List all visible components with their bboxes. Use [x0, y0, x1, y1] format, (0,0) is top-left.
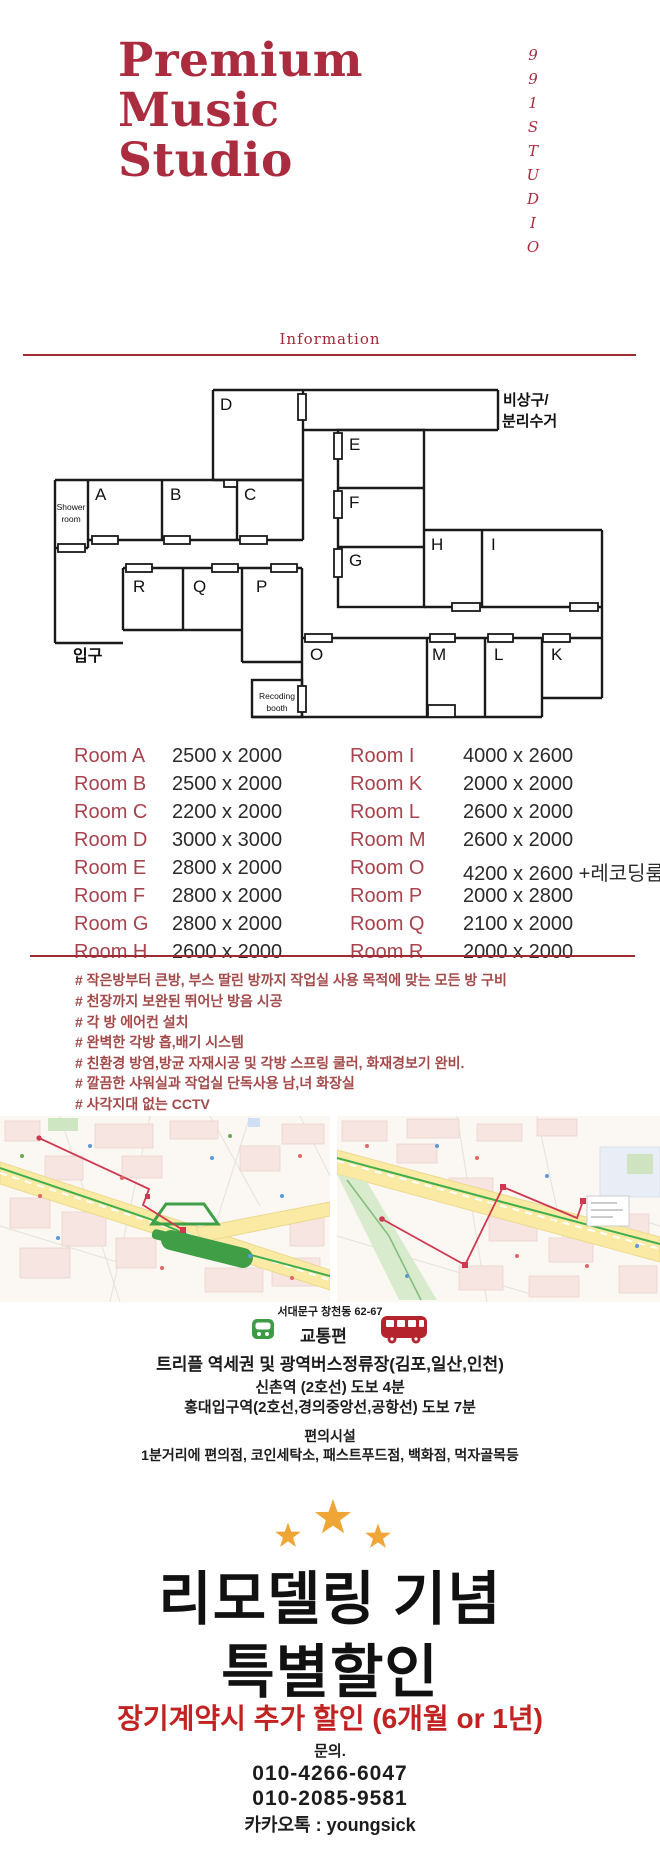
page-title: Premium Music Studio [118, 36, 363, 186]
room-size: 2800 x 2000 [172, 857, 282, 879]
feature-item: # 천장까지 보완된 뛰어난 방음 시공 [75, 991, 283, 1011]
emergency-exit-label-1: 비상구/ [503, 392, 549, 409]
room-label-r: R [133, 577, 145, 596]
amenities-heading: 편의시설 [0, 1426, 660, 1446]
recording-booth-label-1: Recoding [259, 691, 295, 701]
room-size: 2000 x 2000 [463, 773, 573, 795]
room-label-c: C [244, 485, 256, 504]
shower-room-label-2: room [61, 514, 80, 524]
room-size: 3000 x 3000 [172, 829, 282, 851]
room-label-p: P [256, 577, 267, 596]
room-name: Room D [74, 829, 147, 851]
phone-number-2: 010-2085-9581 [0, 1787, 660, 1811]
subway-icon [251, 1318, 275, 1341]
room-size: 2600 x 2000 [463, 829, 573, 851]
room-name: Room H [74, 941, 147, 963]
map-left [0, 1116, 330, 1302]
room-name: Room I [350, 745, 414, 767]
bus-icon [380, 1314, 428, 1345]
title-line-2: Music [118, 86, 363, 136]
vertical-brand-text: 991STUDIO [524, 46, 542, 246]
map-right [337, 1116, 660, 1302]
room-label-b: B [170, 485, 181, 504]
room-size: 2500 x 2000 [172, 773, 282, 795]
room-name: Room B [74, 773, 146, 795]
room-size: 2200 x 2000 [172, 801, 282, 823]
room-size: 2100 x 2000 [463, 913, 573, 935]
floor-plan: D A B C E F G H I R Q P O M L K Shower r… [0, 380, 660, 725]
divider-middle [30, 955, 635, 957]
room-size: 4000 x 2600 [463, 745, 573, 767]
feature-item: # 사각지대 없는 CCTV [75, 1094, 210, 1114]
feature-item: # 각 방 에어컨 설치 [75, 1012, 189, 1032]
room-name: Room Q [350, 913, 424, 935]
divider-top [23, 354, 636, 356]
room-label-m: M [432, 645, 446, 664]
room-name: Room G [74, 913, 148, 935]
room-label-o: O [310, 645, 323, 664]
room-label-l: L [494, 645, 503, 664]
room-name: Room K [350, 773, 422, 795]
recording-booth-label-2: booth [266, 703, 288, 713]
discount-line: 장기계약시 추가 할인 (6개월 or 1년) [0, 1697, 660, 1737]
room-size: 2800 x 2000 [172, 885, 282, 907]
address-text: 서대문구 창천동 62-67 [0, 1303, 660, 1319]
information-heading: Information [0, 330, 660, 348]
room-size: 4200 x 2600 +레코딩룸 [463, 863, 660, 885]
feature-item: # 작은방부터 큰방, 부스 딸린 방까지 작업실 사용 목적에 맞는 모든 방… [75, 970, 507, 990]
room-size: 2000 x 2800 [463, 885, 573, 907]
room-name: Room E [74, 857, 146, 879]
room-size: 2500 x 2000 [172, 745, 282, 767]
flyer-page: Premium Music Studio 991STUDIO Informati… [0, 0, 660, 1856]
kakao-contact: 카카오톡 : youngsick [0, 1811, 660, 1837]
transport-line-2: 신촌역 (2호선) 도보 4분 [0, 1376, 660, 1397]
room-name: Room M [350, 829, 426, 851]
room-label-f: F [349, 493, 359, 512]
room-label-i: I [491, 535, 496, 554]
room-name: Room C [74, 801, 147, 823]
feature-item: # 친환경 방염,방균 자재시공 및 각방 스프링 쿨러, 화재경보기 완비. [75, 1053, 464, 1073]
contact-label: 문의. [0, 1740, 660, 1761]
transport-line-3: 홍대입구역(2호선,경의중앙선,공항선) 도보 7분 [0, 1396, 660, 1417]
room-label-g: G [349, 551, 362, 570]
room-size: 2600 x 2000 [463, 801, 573, 823]
room-label-e: E [349, 435, 360, 454]
room-name: Room P [350, 885, 422, 907]
room-size: 2600 x 2000 [172, 941, 282, 963]
entrance-label: 입구 [73, 647, 103, 665]
transport-heading: 교통편 [300, 1322, 347, 1347]
room-label-k: K [551, 645, 563, 664]
promo-title-line-1: 리모델링 기념 [0, 1552, 660, 1636]
emergency-exit-label-2: 분리수거 [502, 413, 557, 430]
phone-number-1: 010-4266-6047 [0, 1762, 660, 1786]
feature-item: # 완벽한 각방 흡,배기 시스템 [75, 1032, 244, 1052]
room-size: 2000 x 2000 [463, 941, 573, 963]
room-name: Room A [74, 745, 145, 767]
room-label-a: A [95, 485, 107, 504]
title-line-1: Premium [118, 36, 363, 86]
star-decoration [263, 1494, 403, 1554]
room-label-d: D [220, 395, 232, 414]
room-size: 2800 x 2000 [172, 913, 282, 935]
transport-line-1: 트리플 역세권 및 광역버스정류장(김포,일산,인천) [0, 1350, 660, 1375]
feature-item: # 깔끔한 샤워실과 작업실 단독사용 남,녀 화장실 [75, 1073, 355, 1093]
room-name: Room R [350, 941, 423, 963]
room-label-h: H [431, 535, 443, 554]
room-name: Room O [350, 857, 424, 879]
room-name: Room L [350, 801, 420, 823]
shower-room-label-1: Shower [57, 502, 86, 512]
room-name: Room F [74, 885, 145, 907]
amenities-line: 1분거리에 편의점, 코인세탁소, 패스트푸드점, 백화점, 먹자골목등 [0, 1445, 660, 1465]
room-label-q: Q [193, 577, 206, 596]
title-line-3: Studio [118, 136, 363, 186]
